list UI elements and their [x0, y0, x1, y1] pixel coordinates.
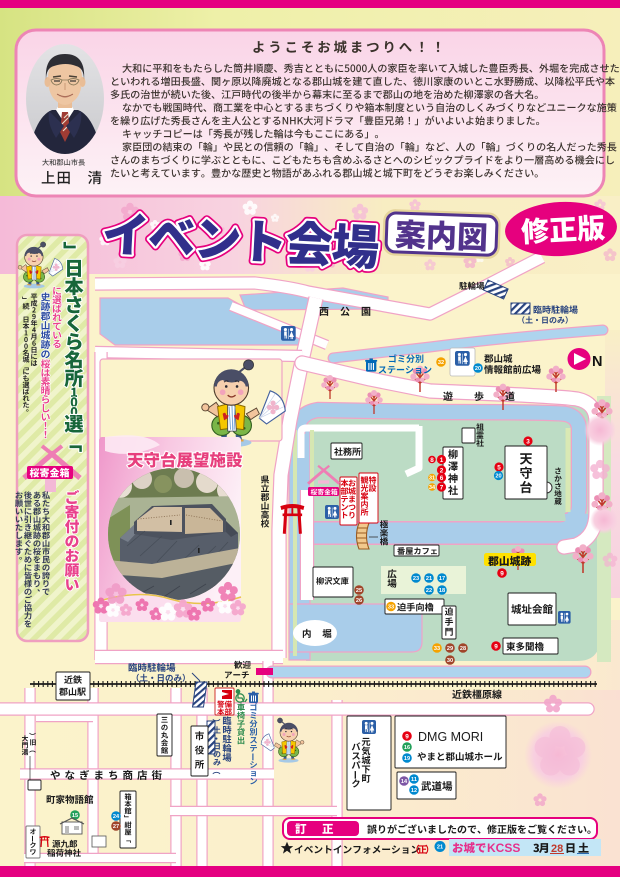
- svg-text:1: 1: [440, 457, 444, 464]
- svg-text:33: 33: [434, 646, 440, 652]
- svg-text:32: 32: [438, 360, 444, 366]
- svg-text:16: 16: [404, 745, 410, 751]
- svg-text:22: 22: [426, 588, 432, 594]
- svg-text:20: 20: [475, 366, 481, 372]
- svg-text:23: 23: [413, 576, 419, 582]
- svg-text:30: 30: [447, 658, 453, 664]
- svg-text:11: 11: [411, 777, 417, 783]
- svg-text:9: 9: [494, 643, 498, 650]
- svg-text:21: 21: [426, 576, 432, 582]
- svg-text:27: 27: [113, 824, 119, 830]
- svg-text:7: 7: [440, 484, 444, 491]
- svg-text:18: 18: [439, 588, 445, 594]
- svg-text:25: 25: [356, 588, 362, 594]
- svg-text:KCSS: KCSS: [487, 841, 520, 855]
- svg-text:N: N: [592, 354, 602, 370]
- svg-text:34: 34: [429, 485, 436, 491]
- svg-text:14: 14: [401, 779, 408, 785]
- svg-text:6: 6: [440, 475, 444, 482]
- svg-text:33: 33: [388, 605, 394, 611]
- svg-text:17: 17: [439, 576, 445, 582]
- svg-text:9: 9: [405, 733, 409, 740]
- svg-text:21: 21: [437, 845, 443, 851]
- svg-text:24: 24: [113, 814, 120, 820]
- svg-text:5: 5: [497, 464, 501, 471]
- svg-text:26: 26: [356, 598, 362, 604]
- svg-text:9: 9: [500, 570, 504, 577]
- svg-text:DMG MORI: DMG MORI: [418, 730, 483, 744]
- svg-text:20: 20: [495, 474, 501, 480]
- svg-text:12: 12: [411, 788, 417, 794]
- svg-text:31: 31: [429, 476, 435, 482]
- svg-text:28: 28: [460, 646, 466, 652]
- svg-text:3: 3: [526, 438, 530, 445]
- svg-text:29: 29: [447, 646, 453, 652]
- svg-text:19: 19: [404, 756, 410, 762]
- svg-text:8: 8: [430, 457, 434, 464]
